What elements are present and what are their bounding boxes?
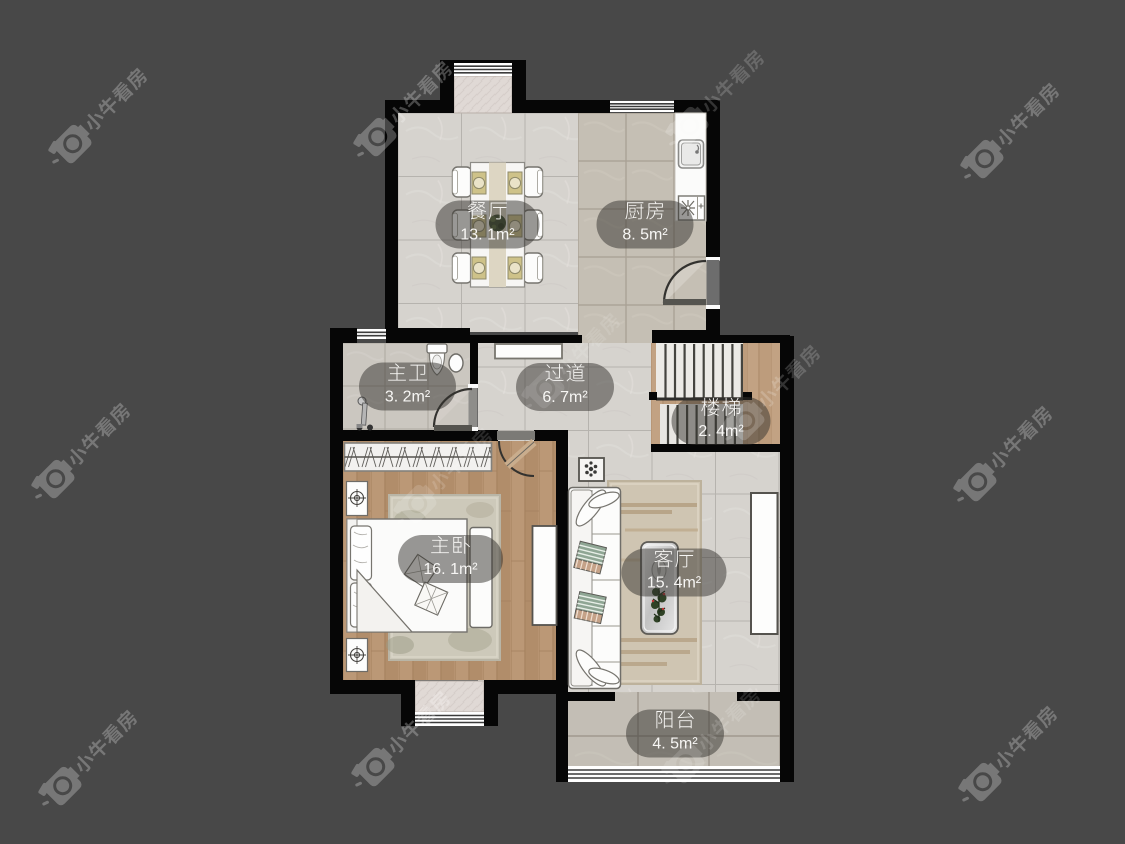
svg-text:8. 5m²: 8. 5m² [622,226,668,243]
svg-text:3. 2m²: 3. 2m² [385,388,431,405]
svg-text:15. 4m²: 15. 4m² [647,574,702,591]
svg-text:13. 1m²: 13. 1m² [460,226,515,243]
svg-text:16. 1m²: 16. 1m² [423,561,478,578]
